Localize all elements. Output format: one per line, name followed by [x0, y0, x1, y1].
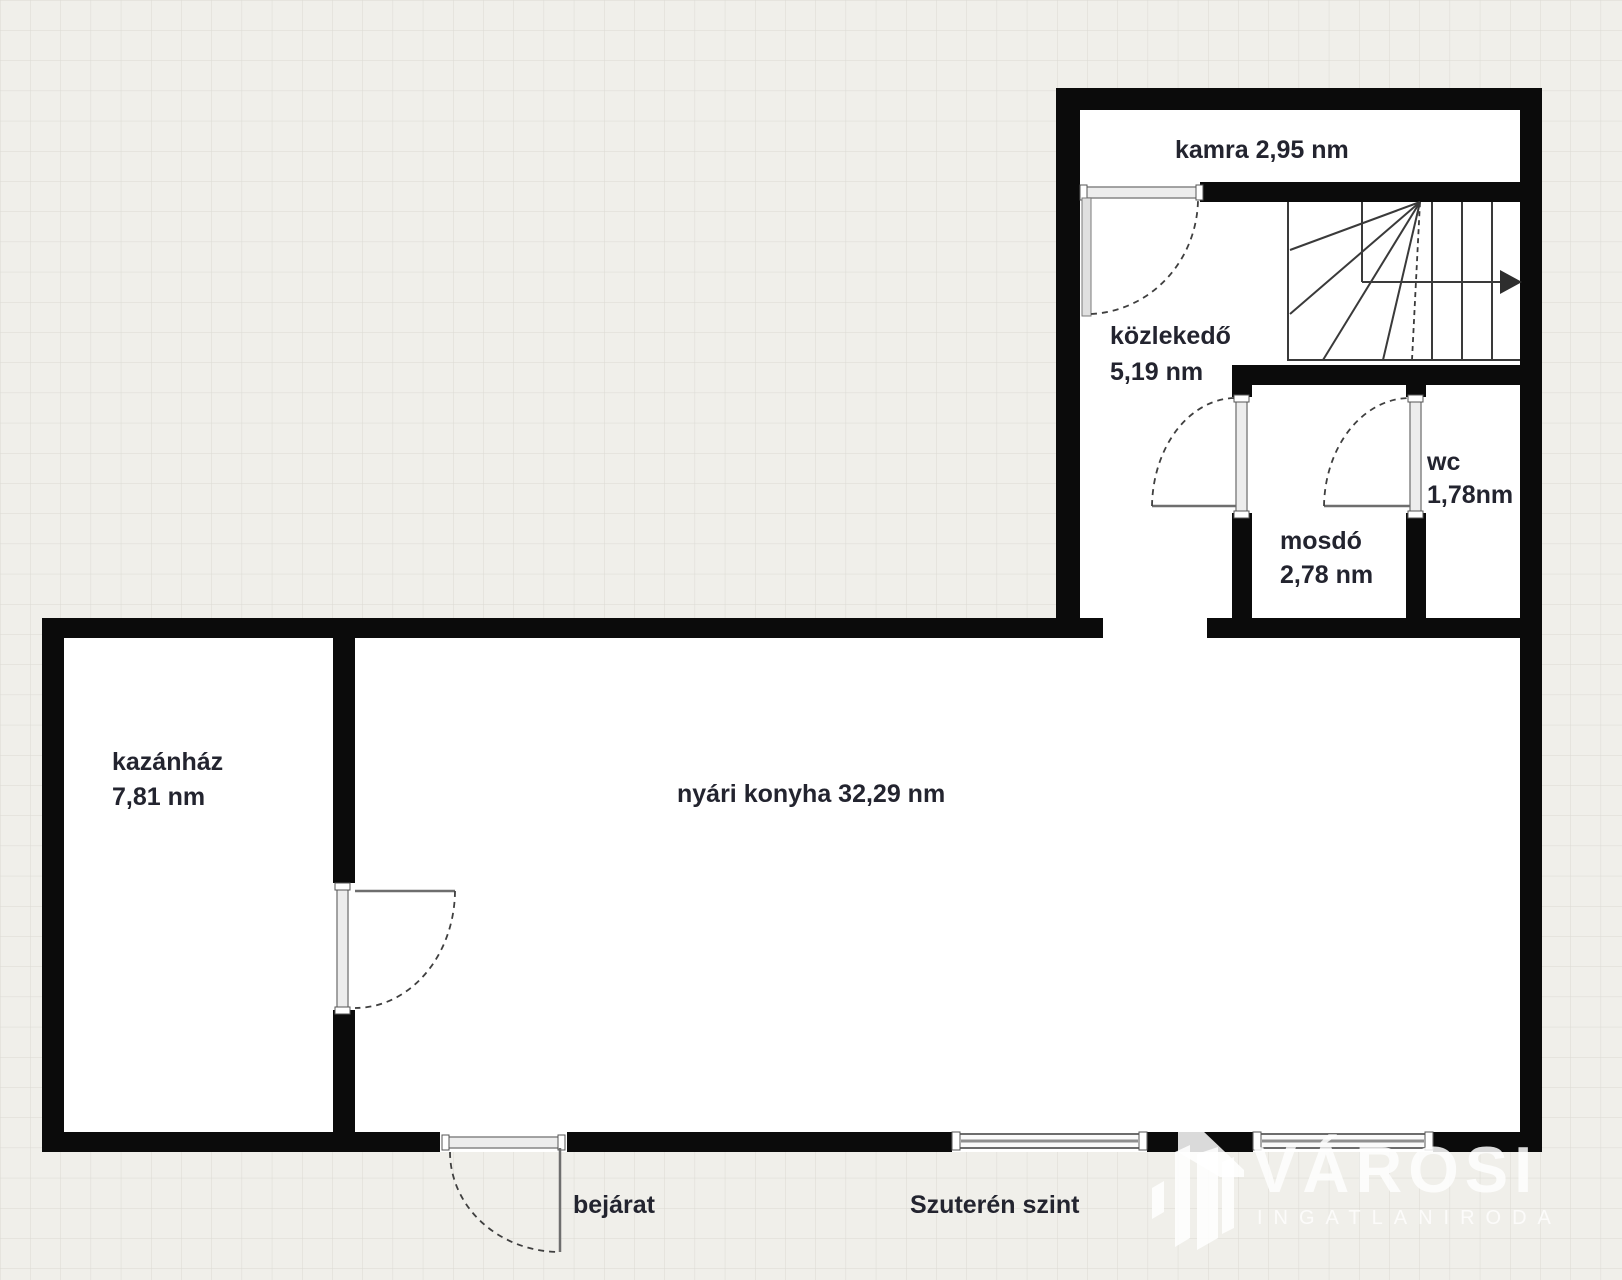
watermark-brand: VÁROSI: [1253, 1133, 1538, 1206]
wall-stairs-bottom: [1232, 365, 1542, 385]
label-nyari-konyha: nyári konyha 32,29 nm: [677, 780, 945, 808]
wall-wc-lower: [1406, 513, 1426, 618]
wall-mosdo-lower: [1232, 513, 1252, 618]
window-1: [952, 1132, 1147, 1150]
wall-lower-left: [42, 618, 64, 1152]
wall-kamra-bottom: [1200, 182, 1520, 202]
label-level: Szuterén szint: [910, 1191, 1080, 1219]
wall-right: [1520, 88, 1542, 1152]
wall-kazanhaz-lower: [333, 1010, 355, 1132]
label-bejarat: bejárat: [573, 1191, 656, 1219]
wall-bottom-2: [567, 1132, 952, 1152]
label-kozlekedo-area: 5,19 nm: [1110, 358, 1203, 386]
label-kamra: kamra 2,95 nm: [1175, 136, 1349, 164]
floor-plan-drawing: kamra 2,95 nm közlekedő 5,19 nm wc 1,78n…: [0, 0, 1622, 1280]
label-mosdo-area: 2,78 nm: [1280, 561, 1373, 589]
wall-upper-left: [1056, 88, 1080, 638]
wall-kazanhaz-upper: [333, 638, 355, 883]
wall-top: [1056, 88, 1542, 110]
label-kazanhaz-area: 7,81 nm: [112, 783, 205, 811]
wall-middle-right: [1207, 618, 1542, 638]
label-wc-area: 1,78nm: [1427, 481, 1513, 509]
label-kozlekedo-name: közlekedő: [1110, 322, 1231, 350]
label-wc-name: wc: [1426, 448, 1460, 476]
wall-middle-left: [42, 618, 1103, 638]
wall-bottom-1: [42, 1132, 440, 1152]
floor-plan-page: kamra 2,95 nm közlekedő 5,19 nm wc 1,78n…: [0, 0, 1622, 1280]
label-kazanhaz-name: kazánház: [112, 748, 223, 776]
watermark-tagline: INGATLANIRODA: [1257, 1207, 1562, 1229]
label-mosdo-name: mosdó: [1280, 527, 1362, 555]
